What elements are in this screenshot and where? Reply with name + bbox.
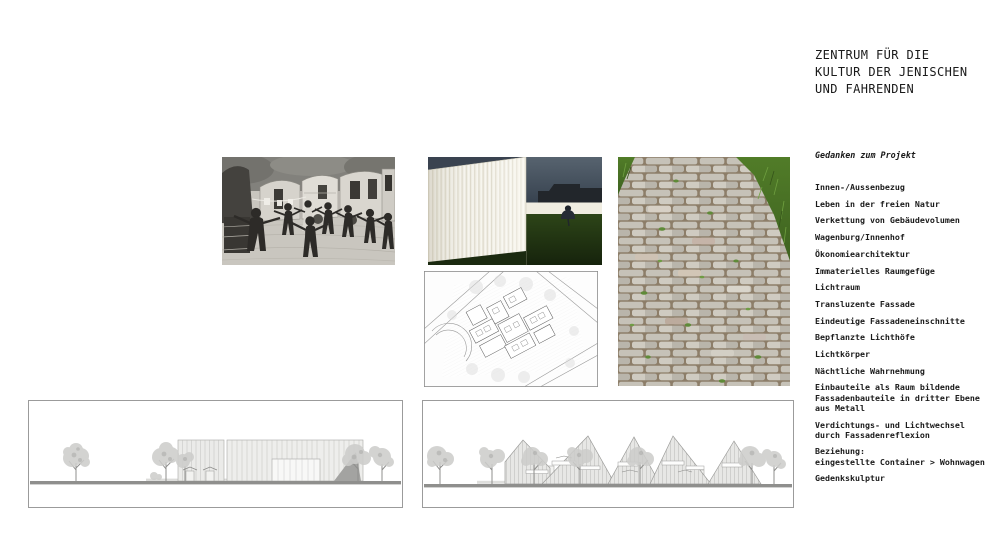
thought-item: Immaterielles Raumgefüge: [815, 266, 1000, 276]
thought-item: Bepflanzte Lichthöfe: [815, 332, 1000, 342]
thought-item: Verkettung von Gebäudevolumen: [815, 215, 1000, 225]
historic-bw-photo-image: [222, 157, 395, 265]
thought-item: Lichtkörper: [815, 349, 1000, 359]
thought-item: Ökonomiearchitektur: [815, 249, 1000, 259]
project-thoughts-list: Innen-/Aussenbezug Leben in der freien N…: [815, 182, 1000, 490]
figure-cobblestone-photo: [618, 157, 790, 386]
translucent-facade-photo-image: [428, 157, 602, 265]
thought-item: Gedenkskulptur: [815, 473, 1000, 483]
figure-historic-photo: [222, 157, 395, 265]
elevation-flat-image: [28, 400, 403, 508]
cobblestone-photo-image: [618, 157, 790, 386]
thought-item: Innen-/Aussenbezug: [815, 182, 1000, 192]
section-heading-gedanken-zum-projekt: Gedanken zum Projekt: [815, 150, 1000, 160]
figure-elevation-flat: [28, 400, 403, 508]
thought-item: Einbauteile als Raum bildende Fassadenba…: [815, 382, 1000, 413]
thought-item: Nächtliche Wahrnehmung: [815, 366, 1000, 376]
elevation-gabled-image: [422, 400, 794, 508]
thought-item: Eindeutige Fassadeneinschnitte: [815, 316, 1000, 326]
thought-item: Transluzente Fassade: [815, 299, 1000, 309]
page-title: ZENTRUM FÜR DIE KULTUR DER JENISCHEN UND…: [815, 47, 1000, 98]
figure-site-plan: [424, 271, 598, 387]
thought-item: Lichtraum: [815, 282, 1000, 292]
thought-item: Wagenburg/Innenhof: [815, 232, 1000, 242]
figure-elevation-gabled: [422, 400, 794, 508]
thought-item: Verdichtungs- und Lichtwechsel durch Fas…: [815, 420, 1000, 440]
site-plan-image: [424, 271, 598, 387]
thought-item: Beziehung: eingestellte Container > Wohn…: [815, 446, 1000, 466]
presentation-page: ZENTRUM FÜR DIE KULTUR DER JENISCHEN UND…: [0, 0, 1000, 548]
thought-item: Leben in der freien Natur: [815, 199, 1000, 209]
figure-facade-photo: [428, 157, 602, 265]
